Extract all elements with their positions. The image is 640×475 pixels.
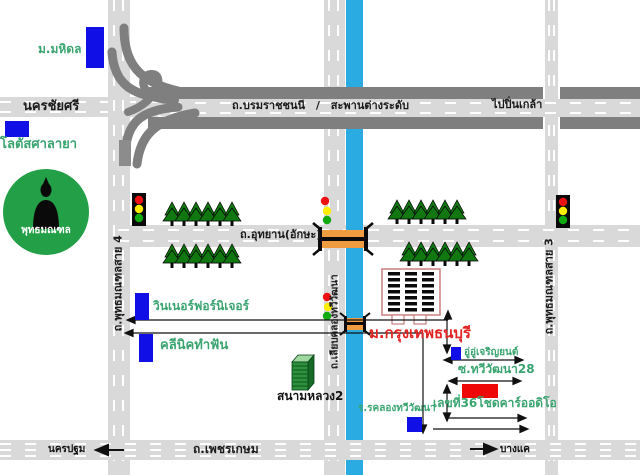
sanam-luang-building-icon (292, 355, 314, 390)
thai-direction-map: ม.มหิดล นครชัยศรี โลตัสศาลายา พุทธมณฑล ถ… (0, 0, 640, 475)
sai4-road-label: ถ.พุทธมณฑลสาย 4 (113, 223, 126, 343)
school-label: ร.รคลองทวีวัฒนา (358, 403, 436, 415)
liap-khlong-road-label: ถ.เลียบคลองทวีวัฒนา (329, 262, 341, 382)
mahidol-marker (86, 27, 104, 68)
bang-khae-label: บางแค (500, 444, 530, 456)
winner-furniture-label: วินเนอร์ฟอร์นิเจอร์ (153, 300, 249, 314)
garage-marker (451, 347, 461, 360)
school-marker (407, 417, 422, 432)
traffic-signal-dots-icon (321, 197, 331, 224)
tree-icon (223, 244, 241, 268)
mahidol-label: ม.มหิดล (38, 43, 81, 57)
lotus-label: โลตัสศาลายา (0, 138, 77, 153)
soi-28-label: ซ.ทวีวัฒนา28 (458, 363, 535, 377)
traffic-light-icon (132, 193, 146, 226)
window-icon (405, 290, 417, 294)
sai3-road-label: ถ.พุทธมณฑลสาย 3 (544, 226, 557, 346)
window-icon (388, 308, 400, 312)
bridge-icon (313, 223, 373, 255)
dental-clinic-label: คลีนิคทำฟัน (160, 339, 228, 354)
tree-icon (460, 242, 478, 266)
window-icon (422, 278, 434, 282)
ramp-stub (119, 140, 131, 166)
window-icon (422, 284, 434, 288)
dental-clinic-marker (139, 334, 153, 362)
garage-label: อู่อู่เจริญยนต์ (464, 347, 518, 359)
window-icon (422, 302, 434, 306)
sanam-luang-2-label: สนามหลวง2 (277, 390, 343, 404)
window-icon (405, 272, 417, 276)
nakhon-pathom-label: นครปฐม (48, 444, 85, 456)
window-icon (388, 290, 400, 294)
window-icon (388, 284, 400, 288)
phetkasem-road-label: ถ.เพชรเกษม (193, 443, 259, 457)
lotus-marker (5, 121, 29, 137)
window-icon (405, 284, 417, 288)
window-icon (422, 296, 434, 300)
direction-arrow-icon (96, 444, 496, 455)
window-icon (422, 308, 434, 312)
to-pin-klao-label: ไปปิ่นเกล้า (492, 99, 542, 112)
phutthamonthon-label: พุทธมณฑล (8, 225, 84, 237)
window-icon (388, 302, 400, 306)
borommaratchachonnani-label: ถ.บรมราชชนนี (232, 99, 305, 112)
bridge-icon (340, 313, 370, 335)
window-icon (405, 296, 417, 300)
window-icon (422, 272, 434, 276)
window-icon (388, 296, 400, 300)
car-audio-label: เลขที่36โชดคาร์ออดิโอ (433, 397, 557, 411)
traffic-light-icon (556, 195, 570, 228)
utthayan-road-label: ถ.อุทยาน(อักษะ) (240, 229, 321, 242)
separator: / (316, 99, 320, 112)
highway-label: ถ.บรมราชชนนี / สะพานต่างระดับ (232, 100, 409, 113)
window-icon (405, 302, 417, 306)
tree-icon (448, 200, 466, 224)
window-icon (422, 290, 434, 294)
nakhon-chai-si-label: นครชัยศรี (23, 100, 79, 115)
winner-furniture-marker (135, 293, 149, 320)
interchange-ramps-icon (112, 28, 195, 166)
overpass-label: สะพานต่างระดับ (331, 99, 409, 112)
window-icon (388, 278, 400, 282)
buddha-statue-icon (3, 169, 89, 255)
tree-icon (223, 202, 241, 226)
window-icon (405, 278, 417, 282)
window-icon (388, 272, 400, 276)
university-building-icon (382, 269, 440, 324)
window-icon (405, 308, 417, 312)
university-label: ม.กรุงเทพธนบุรี (369, 325, 471, 342)
